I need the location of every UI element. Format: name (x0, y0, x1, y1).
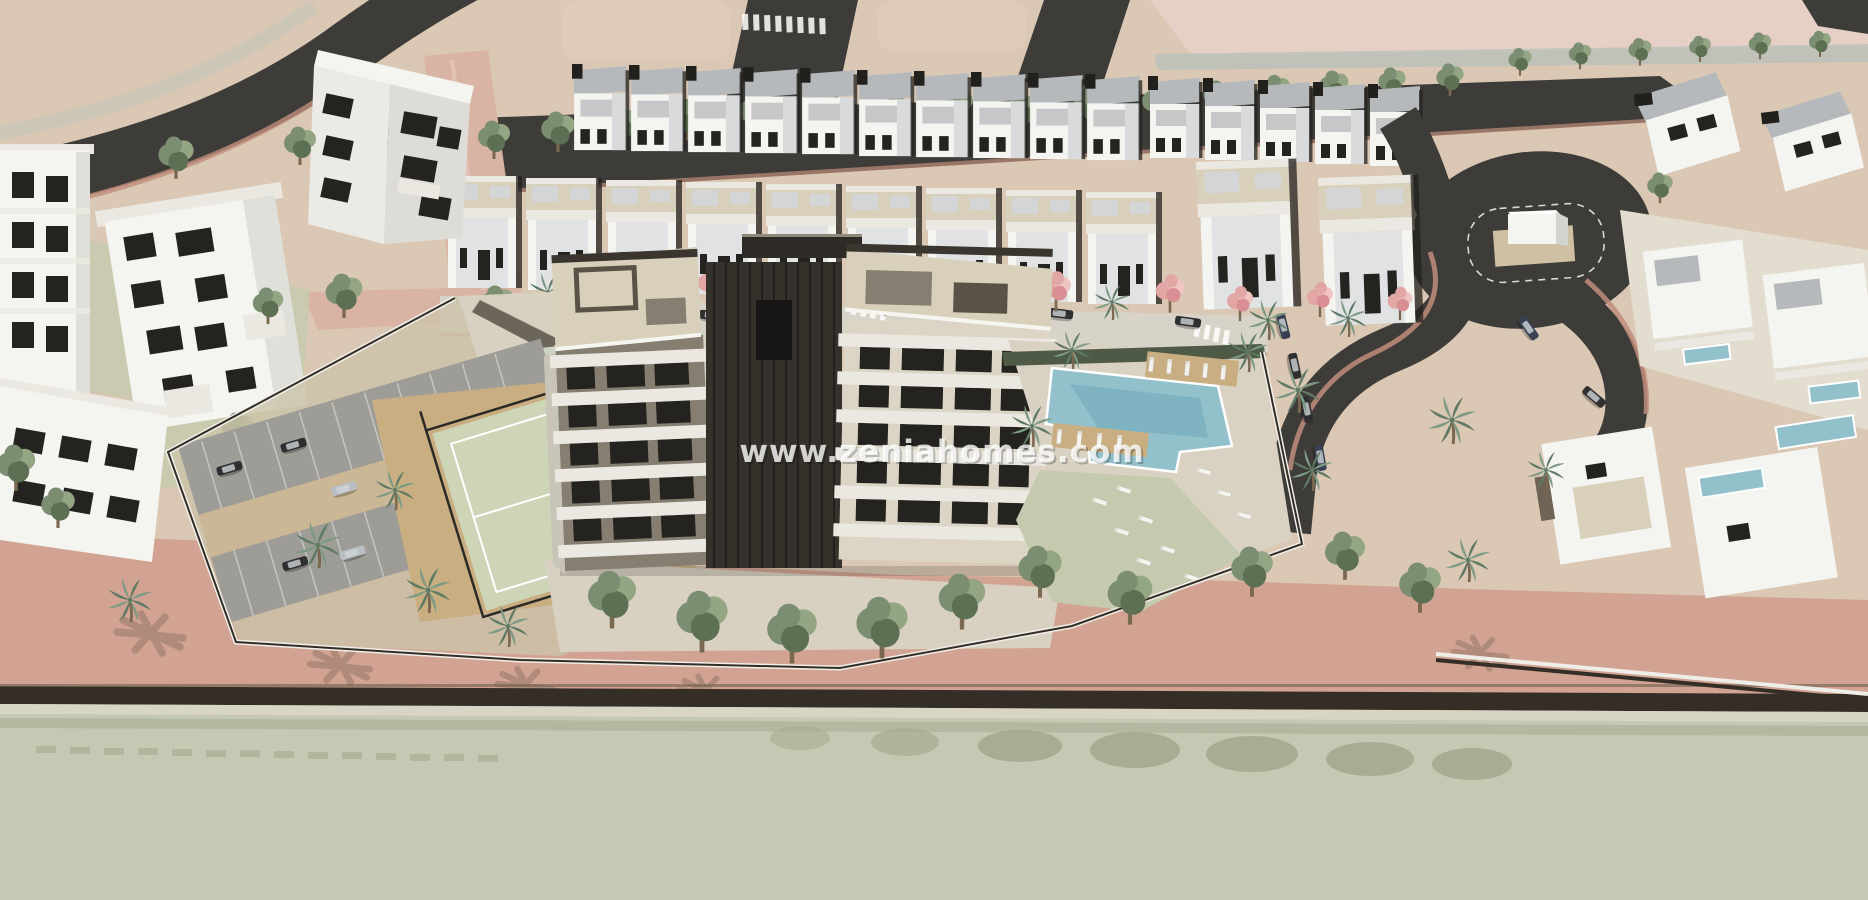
watermark: www.zeniahomes.com www.zeniahomes.com (739, 434, 1146, 472)
townhouse (800, 68, 857, 154)
watermark-text: www.zeniahomes.com (739, 434, 1144, 470)
terrace-townhouse (1086, 192, 1162, 304)
townhouse (1203, 78, 1258, 160)
townhouse (629, 65, 686, 151)
townhouse (572, 64, 629, 150)
roundabout-cube-sculpture (1508, 210, 1568, 246)
townhouse (1028, 73, 1085, 159)
townhouse (971, 72, 1028, 158)
townhouse (1085, 74, 1142, 160)
townhouse (686, 66, 743, 152)
bottom-road (0, 704, 1868, 900)
townhouse (743, 67, 800, 153)
townhouse (1148, 76, 1203, 158)
townhouse (1313, 82, 1368, 164)
townhouse (914, 71, 971, 157)
core-section (706, 234, 862, 568)
terrace-townhouse (1196, 158, 1301, 309)
townhouse (1258, 80, 1313, 162)
apartment-building-far-left (0, 144, 94, 412)
left-wing (539, 247, 719, 576)
roof-pergola (742, 236, 862, 258)
townhouse (857, 70, 914, 156)
render-canvas: www.zeniahomes.com www.zeniahomes.com (0, 0, 1868, 900)
